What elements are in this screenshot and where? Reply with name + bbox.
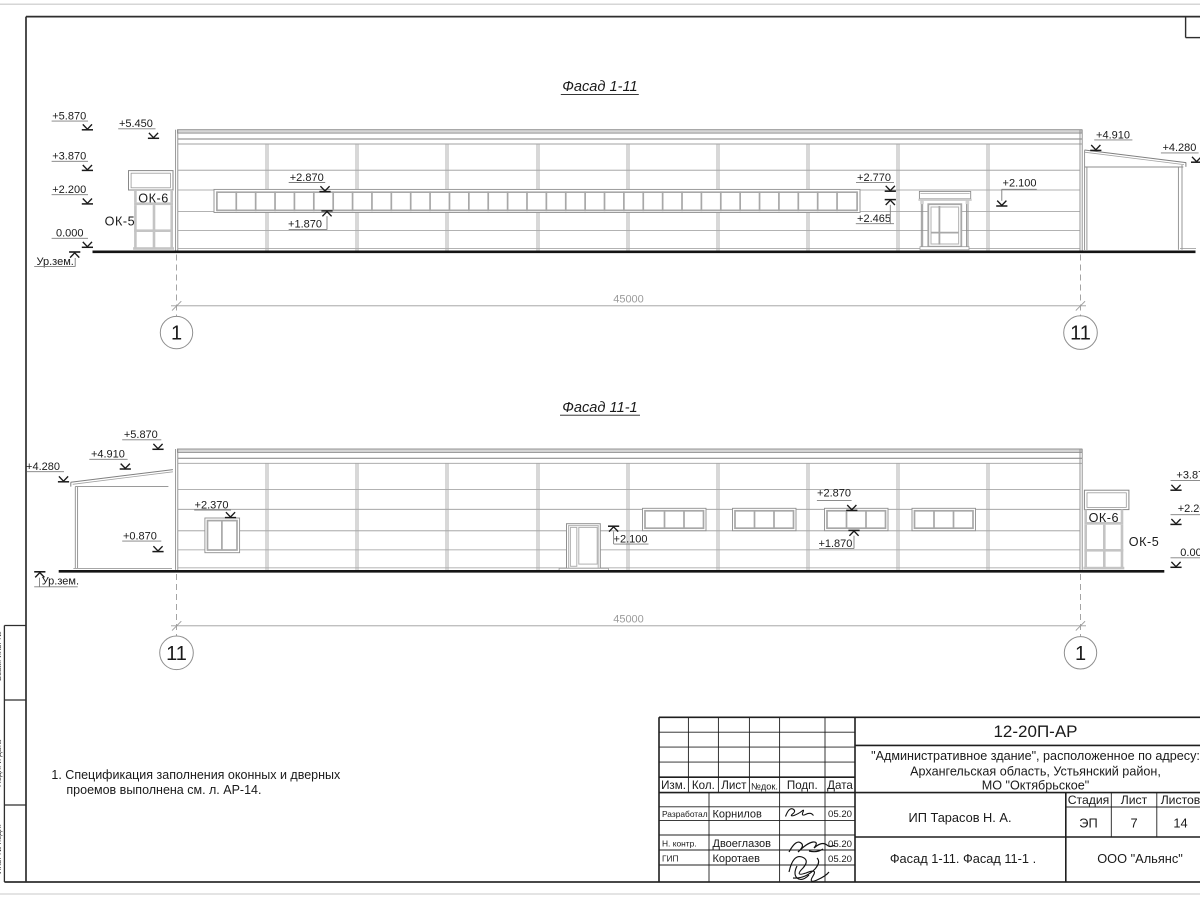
- svg-text:Фасад 1-11. Фасад 11-1 .: Фасад 1-11. Фасад 11-1 .: [890, 851, 1036, 866]
- svg-text:ООО "Альянс": ООО "Альянс": [1097, 851, 1183, 866]
- svg-text:+2.870: +2.870: [817, 487, 851, 499]
- svg-text:1: 1: [171, 323, 182, 345]
- svg-text:ИП Тарасов Н. А.: ИП Тарасов Н. А.: [909, 810, 1012, 825]
- svg-text:11: 11: [1070, 323, 1091, 345]
- svg-text:"Административное здание", рас: "Административное здание", расположенное…: [871, 749, 1200, 763]
- svg-text:Листов: Листов: [1161, 793, 1200, 807]
- svg-text:7: 7: [1130, 815, 1137, 830]
- svg-text:+3.87: +3.87: [1176, 469, 1200, 481]
- svg-text:Н. контр.: Н. контр.: [662, 838, 697, 848]
- svg-text:+2.100: +2.100: [1003, 177, 1037, 189]
- svg-text:ОК-5: ОК-5: [1129, 535, 1160, 549]
- svg-text:+4.910: +4.910: [91, 449, 125, 461]
- svg-text:Ур.зем.: Ур.зем.: [42, 575, 79, 587]
- svg-text:Изм.: Изм.: [661, 779, 686, 792]
- svg-text:+2.20: +2.20: [1178, 503, 1200, 515]
- svg-text:Стадия: Стадия: [1068, 793, 1110, 807]
- svg-text:05.20: 05.20: [828, 839, 852, 850]
- svg-text:Лист: Лист: [1121, 793, 1148, 807]
- svg-text:проемов выполнена см. л. АР-14: проемов выполнена см. л. АР-14.: [66, 783, 261, 797]
- svg-text:ЭП: ЭП: [1079, 815, 1097, 830]
- svg-text:+0.870: +0.870: [123, 530, 157, 542]
- svg-text:Коротаев: Коротаев: [713, 853, 761, 865]
- svg-text:+1.870: +1.870: [288, 218, 322, 230]
- svg-text:+2.200: +2.200: [52, 184, 86, 196]
- svg-text:Взам. инв. №: Взам. инв. №: [0, 631, 3, 681]
- svg-text:Инв. № подл.: Инв. № подл.: [0, 824, 3, 874]
- svg-text:1. Спецификация заполнения око: 1. Спецификация заполнения оконных и две…: [51, 768, 341, 782]
- svg-text:+3.870: +3.870: [52, 151, 86, 163]
- svg-text:+4.280: +4.280: [1162, 142, 1196, 154]
- svg-text:45000: 45000: [613, 294, 644, 306]
- svg-text:14: 14: [1173, 815, 1187, 830]
- svg-text:45000: 45000: [613, 614, 644, 626]
- svg-text:Кол.: Кол.: [692, 779, 715, 792]
- svg-text:+4.280: +4.280: [26, 461, 60, 473]
- svg-text:№док.: №док.: [751, 782, 778, 792]
- svg-text:ГИП: ГИП: [662, 853, 679, 863]
- svg-text:0.000: 0.000: [56, 228, 84, 240]
- svg-text:ОК-5: ОК-5: [105, 215, 136, 229]
- svg-text:Дата: Дата: [827, 779, 853, 792]
- svg-text:Двоеглазов: Двоеглазов: [713, 838, 772, 850]
- svg-text:11: 11: [166, 643, 187, 665]
- svg-text:1: 1: [1075, 643, 1086, 665]
- svg-text:Подп. и дата: Подп. и дата: [0, 739, 3, 787]
- svg-text:Фасад 11-1: Фасад 11-1: [562, 400, 637, 416]
- svg-text:Корнилов: Корнилов: [713, 809, 763, 821]
- svg-text:+2.100: +2.100: [614, 533, 648, 545]
- svg-text:+2.465: +2.465: [857, 213, 891, 225]
- svg-text:05.20: 05.20: [828, 809, 852, 820]
- svg-text:МО "Октябрьское": МО "Октябрьское": [982, 778, 1090, 792]
- svg-text:12-20П-АР: 12-20П-АР: [993, 722, 1077, 741]
- svg-text:Разработал: Разработал: [662, 809, 708, 819]
- svg-text:Лист: Лист: [721, 779, 747, 792]
- svg-text:Фасад 1-11: Фасад 1-11: [562, 79, 637, 95]
- svg-text:Архангельская область, Устьянс: Архангельская область, Устьянский район,: [910, 764, 1161, 778]
- svg-text:Подп.: Подп.: [787, 779, 818, 792]
- svg-text:05.20: 05.20: [828, 854, 852, 865]
